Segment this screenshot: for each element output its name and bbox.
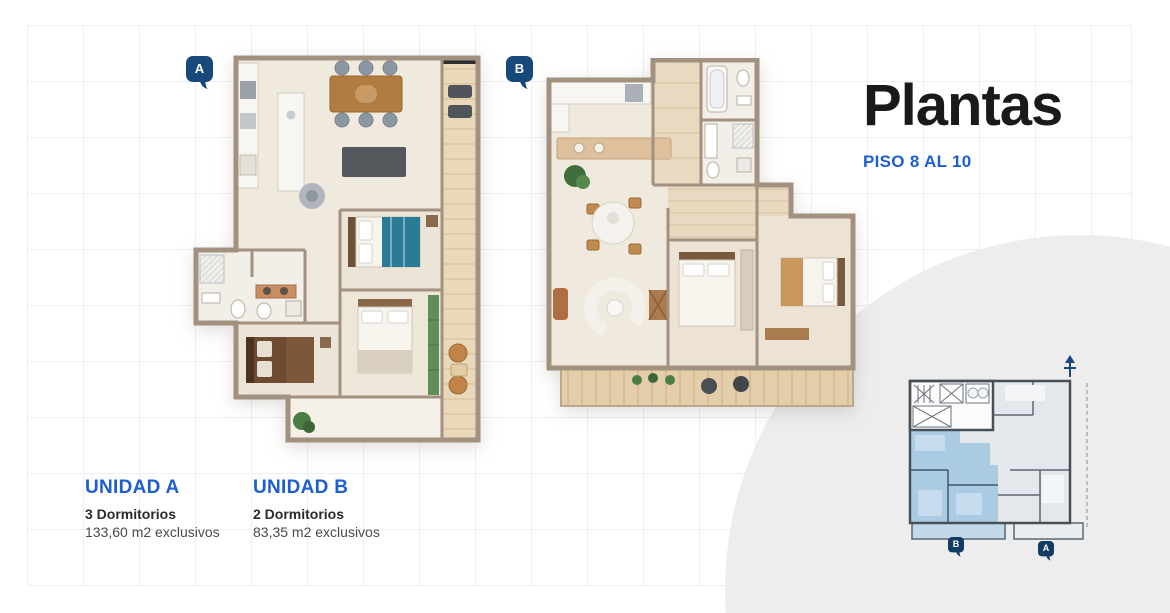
unit-a-info: UNIDAD A 3 Dormitorios 133,60 m2 exclusi… (85, 477, 220, 540)
page: A B Plantas PISO 8 AL 10 UNIDAD A 3 Dorm… (0, 0, 1170, 613)
unit-a-area: 133,60 m2 exclusivos (85, 524, 220, 540)
floorplan-unit-a-illustration (190, 55, 482, 445)
unit-a-bedrooms: 3 Dormitorios (85, 506, 220, 522)
floorplan-unit-a (190, 55, 482, 445)
unit-b-area: 83,35 m2 exclusivos (253, 524, 380, 540)
keyplan-unit-a-label: A (1038, 541, 1054, 556)
unit-a-marker: A (186, 56, 213, 89)
title-block: Plantas PISO 8 AL 10 (863, 74, 1062, 172)
unit-a-marker-label: A (186, 56, 213, 82)
keyplan-illustration (890, 375, 1090, 545)
unit-b-info: UNIDAD B 2 Dormitorios 83,35 m2 exclusiv… (253, 477, 380, 540)
unit-a-name: UNIDAD A (85, 477, 220, 499)
keyplan-unit-b-label: B (948, 537, 964, 552)
unit-b-name: UNIDAD B (253, 477, 380, 499)
floorplan-unit-b (541, 58, 859, 408)
keyplan-unit-b-marker: B (948, 537, 964, 557)
unit-b-marker: B (506, 56, 533, 89)
page-subtitle: PISO 8 AL 10 (863, 152, 1062, 172)
keyplan: B A (890, 353, 1102, 571)
floorplan-unit-b-illustration (541, 58, 859, 408)
unit-b-marker-label: B (506, 56, 533, 82)
keyplan-unit-a-marker: A (1038, 541, 1054, 561)
page-title: Plantas (863, 74, 1062, 139)
unit-b-bedrooms: 2 Dormitorios (253, 506, 380, 522)
